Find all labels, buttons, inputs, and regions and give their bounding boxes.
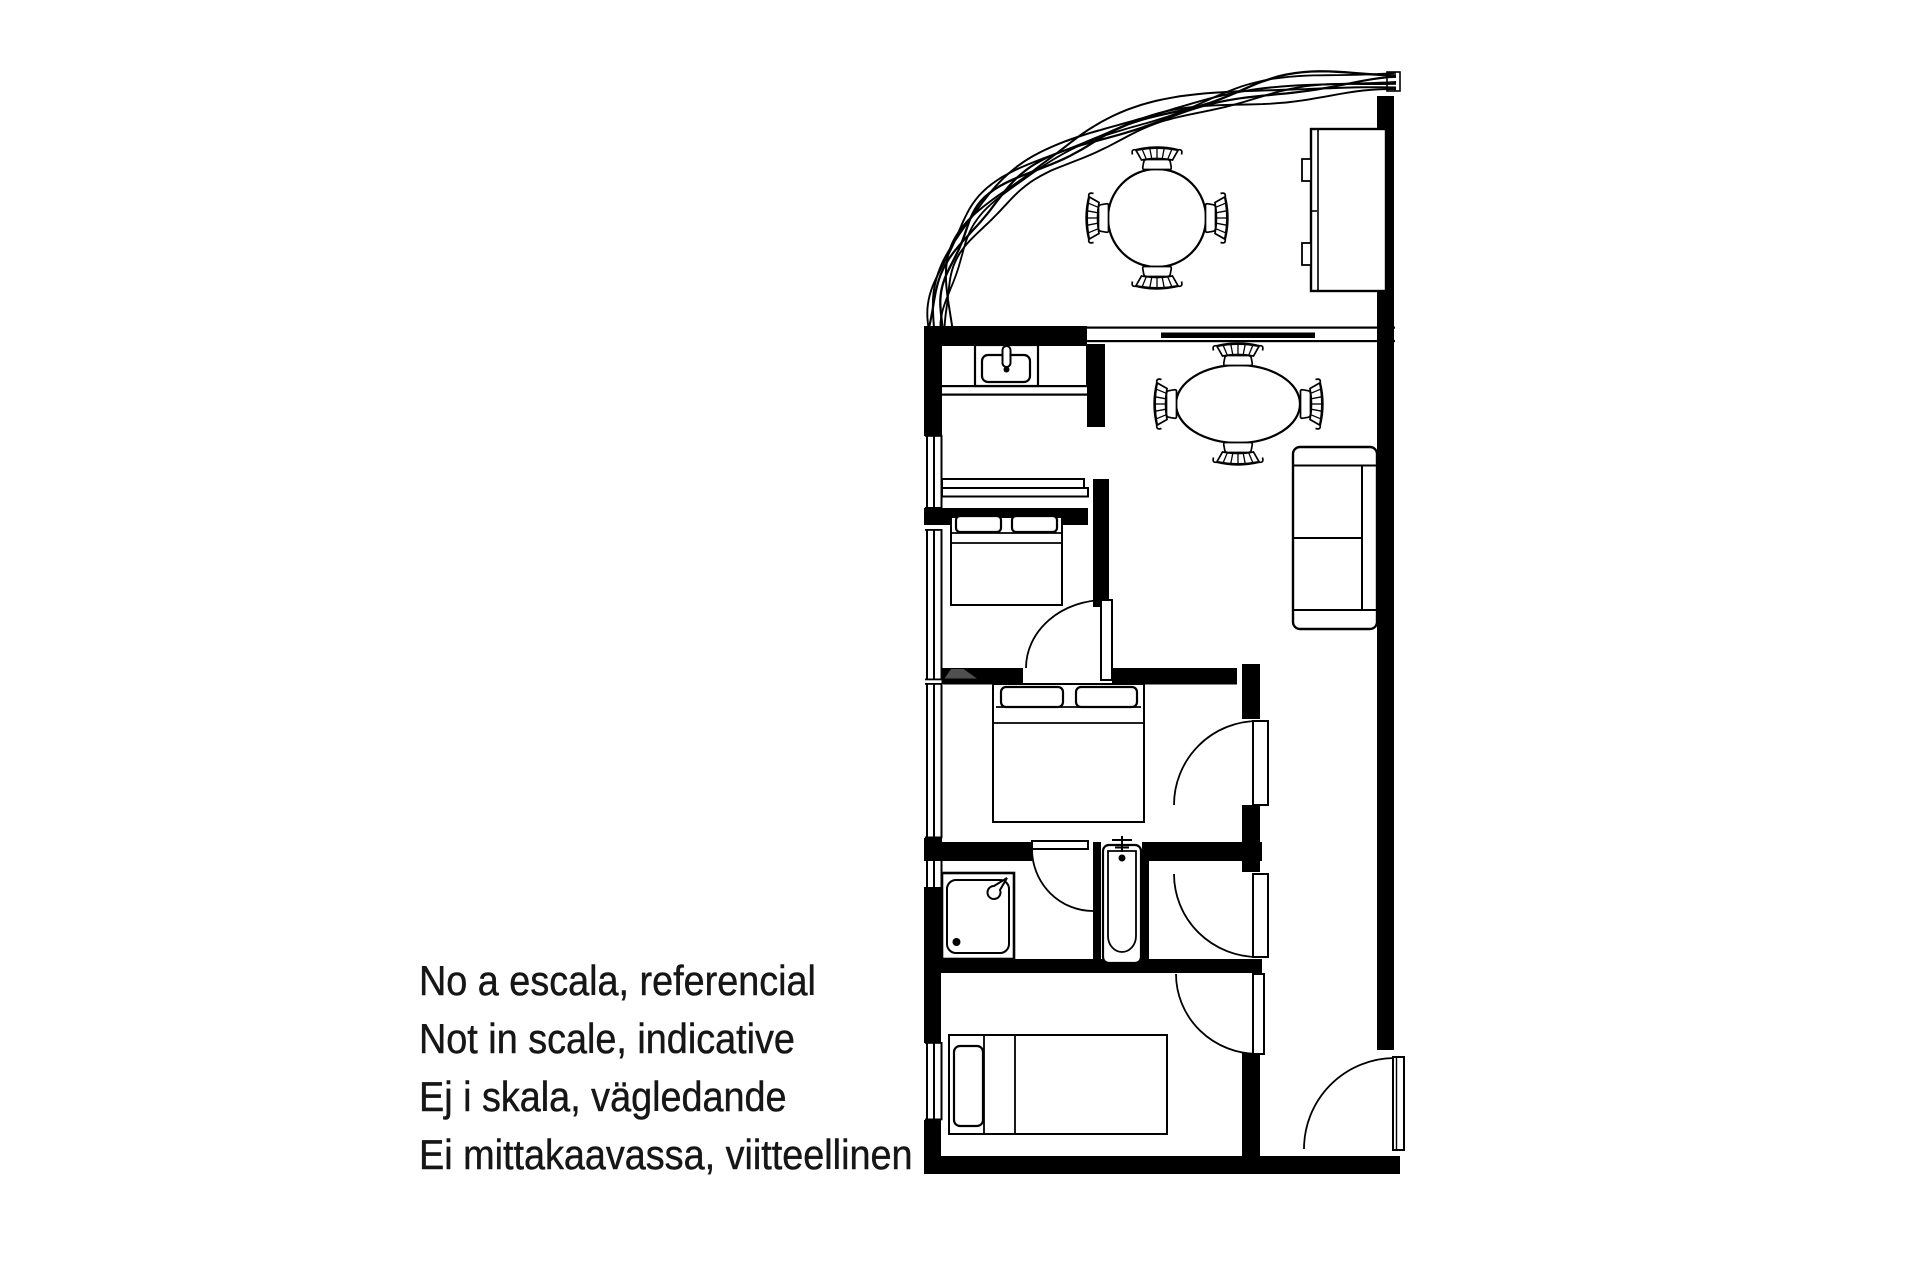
svg-text:Ei mittakaavassa, viitteelline: Ei mittakaavassa, viitteellinen	[419, 1132, 913, 1178]
svg-text:Not in scale, indicative: Not in scale, indicative	[419, 1016, 795, 1062]
svg-text:Ej i skala, vägledande: Ej i skala, vägledande	[419, 1074, 787, 1120]
svg-text:No a escala, referencial: No a escala, referencial	[419, 958, 816, 1004]
